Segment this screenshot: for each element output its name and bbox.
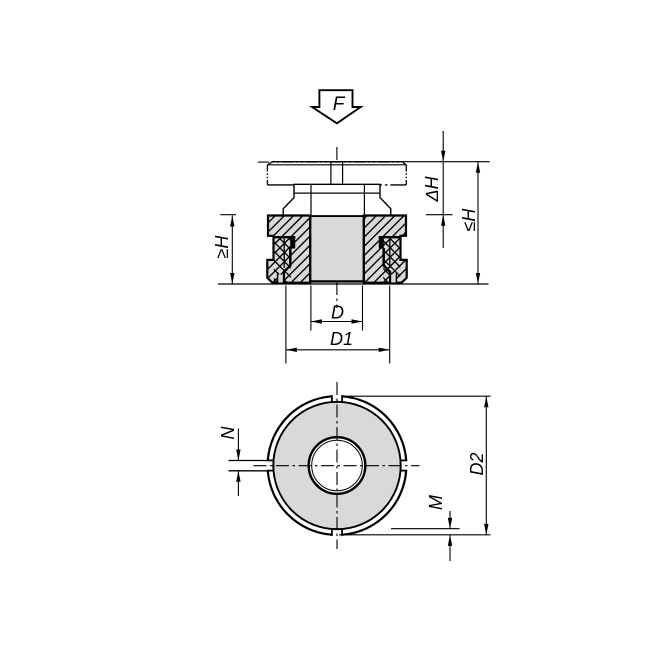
svg-text:N: N <box>218 426 238 440</box>
svg-text:≥H: ≥H <box>212 235 232 259</box>
svg-text:D2: D2 <box>467 452 487 475</box>
svg-text:F: F <box>333 94 346 115</box>
svg-text:ΔH: ΔH <box>422 175 442 202</box>
svg-text:D1: D1 <box>330 329 353 349</box>
svg-text:D: D <box>331 302 344 322</box>
svg-text:M: M <box>426 495 446 510</box>
svg-text:≤H: ≤H <box>459 208 479 232</box>
